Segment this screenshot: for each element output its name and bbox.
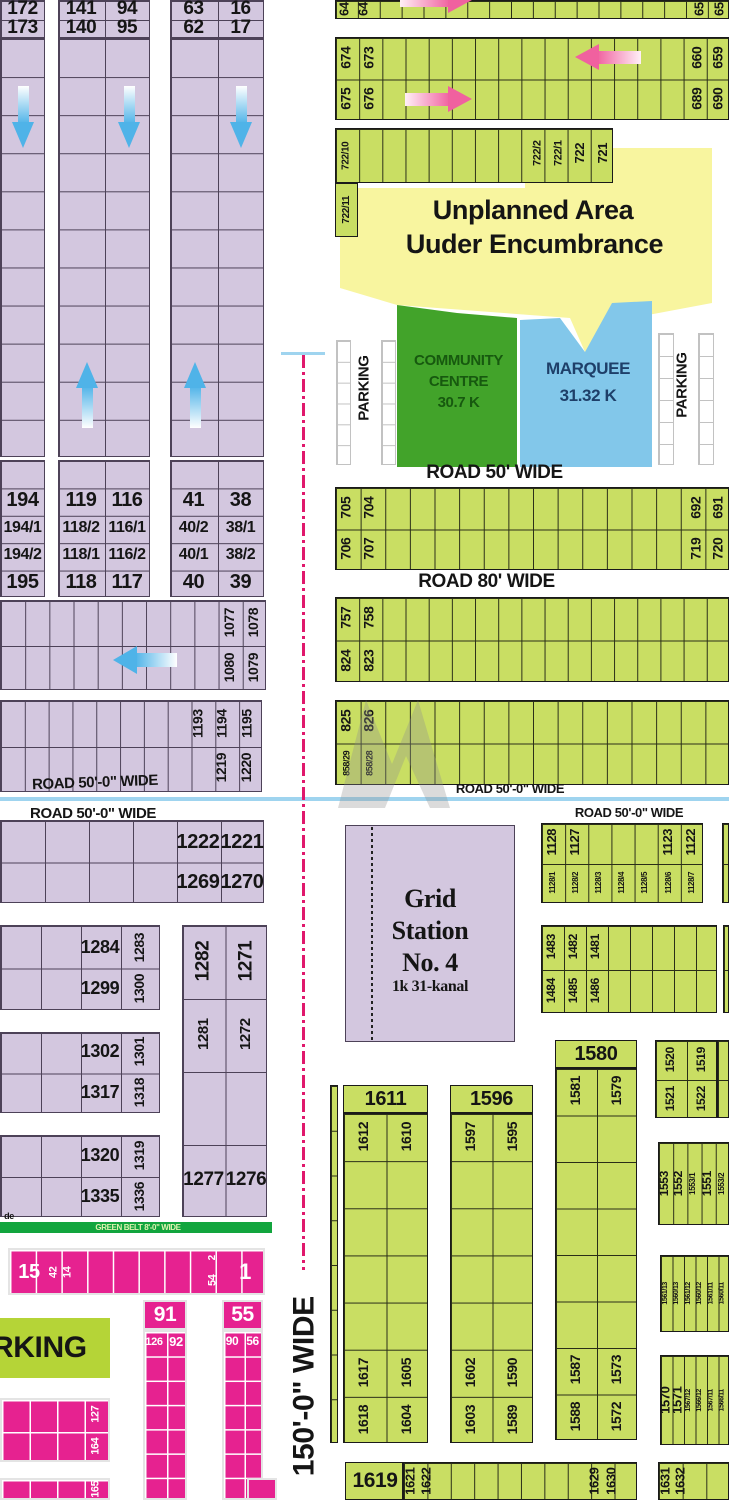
label-text: 1561/12 — [686, 1282, 693, 1305]
plot-label-1318: 1318 — [120, 1072, 160, 1113]
label-text: ROAD 50' WIDE — [426, 464, 563, 482]
label-text: 1128 — [546, 829, 558, 856]
plot-label-692: 692 — [685, 487, 707, 528]
label-text: 30.7 K — [438, 396, 480, 410]
label-text: Unplanned Area — [433, 198, 633, 224]
label-text: 1128/4 — [618, 872, 626, 894]
plot-label-1580: 1580 — [555, 1040, 637, 1068]
plot-grid-stalls-right-2 — [698, 333, 714, 465]
plot-label-1519: 1519 — [686, 1040, 717, 1079]
label-text: 17 — [230, 19, 250, 37]
label-text: 54 — [208, 1274, 218, 1285]
plot-label-parking: PARKING — [670, 335, 696, 435]
plot-label-1k-31-kanal: 1k 31-kanal — [345, 977, 515, 997]
plot-label-719: 719 — [685, 528, 707, 570]
label-text: 1300 — [133, 974, 146, 1004]
plot-label-41: 41 — [170, 487, 217, 514]
plot-label-1222: 1222 — [176, 822, 220, 862]
plot-label-1300: 1300 — [120, 968, 160, 1009]
blue-arrow-up-icon — [76, 362, 99, 428]
label-text: 15 — [18, 1263, 39, 1282]
label-text: 1080 — [223, 653, 236, 683]
label-text: 1631 — [659, 1467, 671, 1494]
label-text: 90 — [226, 1336, 239, 1347]
label-text: 1560/13 — [674, 1282, 681, 1305]
plot-label-194: 194 — [0, 487, 45, 514]
plot-label-road-80-wide: ROAD 80' WIDE — [405, 571, 568, 593]
plot-grid-r0 — [335, 0, 729, 19]
plot-label-1551: 1551 — [701, 1142, 715, 1225]
label-text: 825 — [340, 710, 353, 732]
plot-label-690: 690 — [708, 78, 729, 120]
plot-label-1221: 1221 — [220, 822, 264, 862]
label-text: 1284 — [81, 939, 119, 956]
label-text: 721 — [597, 143, 609, 164]
plot-label-1596: 1596 — [450, 1085, 533, 1113]
label-text: 1567/11 — [709, 1389, 716, 1411]
plot-label-1566-12: 1566/12 — [695, 1355, 706, 1445]
plot-label-1128-7: 1128/7 — [680, 862, 703, 903]
plot-label-126: 126 — [143, 1330, 165, 1354]
label-text: 1560/12 — [697, 1282, 704, 1305]
label-text: 1277 — [183, 1171, 224, 1189]
plot-label-673: 673 — [358, 37, 381, 78]
label-text: 1482 — [568, 934, 579, 959]
plot-label-1579: 1579 — [596, 1068, 637, 1114]
plot-label-1270: 1270 — [220, 862, 264, 902]
label-text: 64 — [357, 2, 369, 16]
plot-label-1482: 1482 — [563, 925, 585, 969]
plot-label-173: 173 — [0, 19, 45, 38]
plot-label-40-1: 40/1 — [170, 541, 217, 568]
plot-label-1282: 1282 — [182, 925, 225, 998]
plot-label-1617: 1617 — [343, 1349, 385, 1396]
plot-grid-r3 — [335, 487, 729, 570]
plot-label-parking: PARKING — [0, 1318, 110, 1378]
pink-arrow-left-icon — [575, 44, 641, 70]
label-text: 1580 — [575, 1045, 618, 1064]
label-text: 39 — [230, 573, 251, 592]
plot-label-1605: 1605 — [385, 1349, 428, 1396]
label-text: 1270 — [221, 873, 264, 892]
label-text: 42 — [48, 1266, 58, 1277]
blue-arrow-down-icon — [118, 86, 141, 148]
plot-label-1195: 1195 — [234, 702, 260, 746]
plot-label-1619: 1619 — [347, 1462, 403, 1500]
label-text: 1590 — [506, 1358, 519, 1388]
plot-label-1618: 1618 — [343, 1396, 385, 1443]
label-text: 1272 — [239, 1019, 253, 1051]
plot-label-1319: 1319 — [120, 1135, 160, 1176]
plot-label-1283: 1283 — [120, 927, 160, 968]
label-text: 1077 — [223, 608, 236, 638]
plot-label-141: 141 — [58, 0, 104, 19]
label-text: 1193 — [191, 710, 204, 739]
plot-label-117: 117 — [104, 568, 150, 597]
plot-label-1552: 1552 — [672, 1142, 686, 1225]
label-text: 1572 — [610, 1402, 623, 1432]
label-text: 1630 — [605, 1467, 617, 1494]
label-text: 1320 — [81, 1147, 119, 1164]
plot-label-1622: 1622 — [419, 1462, 435, 1500]
plot-label-1589: 1589 — [492, 1396, 533, 1443]
plot-label-1127: 1127 — [564, 823, 587, 862]
plot-label-1336: 1336 — [120, 1176, 160, 1217]
plot-label-675: 675 — [335, 78, 358, 120]
label-text: 1222 — [177, 833, 220, 852]
plot-label-1301: 1301 — [120, 1032, 160, 1072]
label-text: 127 — [91, 1405, 101, 1422]
plot-label-90: 90 — [222, 1330, 242, 1354]
label-text: 195 — [6, 573, 38, 592]
plot-label-1522: 1522 — [686, 1079, 717, 1118]
label-text: 705 — [340, 496, 353, 518]
label-text: 1128/3 — [595, 872, 603, 894]
plot-label-1571: 1571 — [672, 1355, 683, 1445]
label-text: 1 — [239, 1262, 251, 1283]
plot-label-1335: 1335 — [80, 1176, 120, 1217]
housing-scheme-master-plan: 1721731419414095631662171941191164138194… — [0, 0, 729, 1500]
label-text: 689 — [691, 88, 704, 110]
label-text: 1079 — [247, 653, 260, 683]
label-text: 676 — [363, 88, 376, 110]
label-text: 41 — [183, 491, 204, 510]
label-text: ROAD 50'-0" WIDE — [456, 783, 564, 795]
label-text: 56 — [246, 1336, 259, 1347]
plot-label-1317: 1317 — [80, 1072, 120, 1113]
plot-label-road-50-0-wide: ROAD 50'-0" WIDE — [565, 806, 693, 821]
plot-label-689: 689 — [687, 78, 708, 120]
plot-label-1077: 1077 — [218, 600, 242, 645]
label-text: Uuder Encumbrance — [406, 232, 663, 258]
plot-grid-r1 — [335, 37, 729, 120]
plot-label-1560-11: 1560/11 — [718, 1255, 729, 1332]
phase-boundary-line — [302, 355, 305, 1270]
plot-label-1486: 1486 — [585, 969, 607, 1013]
plot-label-38: 38 — [217, 487, 264, 514]
label-text: 164 — [91, 1437, 101, 1454]
plot-grid-r4 — [335, 597, 729, 682]
plot-label-1128-3: 1128/3 — [587, 862, 610, 903]
label-text: 126 — [145, 1337, 162, 1347]
plot-label-674: 674 — [335, 37, 358, 78]
plot-grid-col91 — [143, 1330, 187, 1500]
plot-label-1595: 1595 — [492, 1113, 533, 1160]
plot-label-91: 91 — [143, 1302, 187, 1328]
label-text: 1612 — [357, 1122, 370, 1152]
label-text: 1589 — [506, 1405, 519, 1435]
label-text: 1619 — [352, 1471, 397, 1491]
label-text: 194 — [6, 491, 38, 510]
blue-arrow-up-icon — [184, 362, 207, 428]
label-text: CENTRE — [429, 375, 488, 389]
plot-label-uuder-encumbrance: Uuder Encumbrance — [362, 229, 707, 261]
label-text: ROAD 80' WIDE — [418, 573, 555, 591]
label-text: 116/1 — [108, 520, 145, 535]
plot-label-1122: 1122 — [680, 823, 703, 862]
label-text: 1301 — [133, 1037, 146, 1067]
label-text: 1276 — [226, 1171, 267, 1189]
plot-grid-stalls-left-2 — [381, 340, 396, 465]
plot-label-64: 64 — [354, 0, 373, 18]
plot-label-unplanned-area: Unplanned Area — [397, 195, 669, 227]
label-text: 1629 — [588, 1467, 600, 1494]
plot-label-1483: 1483 — [541, 925, 563, 969]
plot-label-1128: 1128 — [541, 823, 564, 862]
label-text: 719 — [689, 538, 702, 560]
plot-label-1621: 1621 — [403, 1462, 419, 1500]
plot-label-118: 118 — [58, 568, 104, 597]
label-text: 823 — [363, 649, 376, 671]
label-text: 1521 — [665, 1086, 676, 1111]
label-text: Station — [392, 919, 469, 944]
plot-label-825: 825 — [335, 700, 358, 742]
label-text: 707 — [363, 538, 376, 560]
plot-label-1553-2: 1553/2 — [715, 1142, 729, 1225]
plot-label-1581: 1581 — [555, 1068, 596, 1114]
label-text: 116 — [111, 491, 142, 510]
plot-label-17: 17 — [217, 19, 264, 38]
label-text: 1484 — [546, 978, 557, 1003]
label-text: 1553/1 — [690, 1172, 698, 1194]
label-text: 1220 — [240, 753, 253, 783]
plot-grid-blk1520-sl — [717, 1040, 729, 1118]
label-text: 118 — [65, 573, 96, 592]
label-text: 673 — [363, 46, 376, 68]
label-text: 1317 — [81, 1084, 119, 1101]
plot-label-1611: 1611 — [343, 1085, 428, 1113]
label-text: 1319 — [133, 1141, 146, 1171]
label-text: 117 — [111, 573, 142, 592]
label-text: 94 — [117, 0, 137, 18]
plot-label-1602: 1602 — [450, 1349, 492, 1396]
label-text: 1122 — [685, 829, 697, 856]
label-text: 1k 31-kanal — [392, 979, 468, 994]
plot-label-1588: 1588 — [555, 1394, 596, 1440]
label-text: 1485 — [568, 978, 579, 1003]
plot-label-grid: Grid — [345, 884, 515, 914]
label-text: ROAD 50'-0" WIDE — [30, 807, 156, 821]
plot-label-38-2: 38/2 — [217, 541, 264, 568]
label-text: 758 — [363, 607, 376, 629]
plot-grid-col55 — [222, 1330, 263, 1500]
label-text: 14 — [62, 1266, 72, 1277]
label-text: 140 — [66, 19, 97, 37]
label-text: 1522 — [696, 1086, 707, 1111]
plot-label-118-2: 118/2 — [58, 514, 104, 541]
label-text: 1123 — [662, 829, 674, 856]
label-text: 118/2 — [62, 520, 99, 535]
label-text: 1481 — [590, 934, 601, 959]
label-text: 2 — [208, 1255, 218, 1260]
plot-label-1271: 1271 — [225, 925, 267, 998]
plot-label-1128-1: 1128/1 — [541, 862, 564, 903]
plot-label-38-1: 38/1 — [217, 514, 264, 541]
plot-label-1521: 1521 — [655, 1079, 686, 1118]
label-text: 1486 — [590, 978, 601, 1003]
label-text: 1611 — [365, 1090, 407, 1109]
label-text: 1519 — [696, 1047, 707, 1072]
plot-label-1553-1: 1553/1 — [686, 1142, 701, 1225]
label-text: 38/2 — [226, 547, 256, 562]
plot-label-65: 65 — [710, 0, 729, 18]
label-text: 706 — [340, 538, 353, 560]
plot-label-1128-4: 1128/4 — [610, 862, 633, 903]
label-text: 62 — [183, 19, 203, 37]
label-text: 1596 — [470, 1090, 513, 1109]
label-text: 691 — [711, 496, 724, 518]
label-text: 63 — [183, 0, 203, 18]
label-text: 1604 — [400, 1405, 413, 1435]
plot-label-150-0-wide: 150'-0" WIDE — [284, 1272, 326, 1500]
plot-label-1604: 1604 — [385, 1396, 428, 1443]
plot-label-1587: 1587 — [555, 1347, 596, 1393]
label-text: 1520 — [665, 1047, 676, 1072]
plot-label-55: 55 — [222, 1302, 263, 1328]
blue-arrow-down-icon — [12, 86, 35, 148]
label-text: 1566/12 — [697, 1389, 704, 1412]
plot-label-140: 140 — [58, 19, 104, 38]
label-text: 1617 — [357, 1358, 370, 1388]
label-text: 1588 — [569, 1402, 582, 1432]
label-text: PARKING — [676, 352, 690, 417]
blue-arrow-left-icon — [113, 646, 177, 674]
label-text: 194/1 — [3, 520, 41, 535]
label-text: 119 — [65, 491, 96, 510]
label-text: 1483 — [546, 934, 557, 959]
plot-label-116: 116 — [104, 487, 150, 514]
plot-label-1219: 1219 — [210, 746, 234, 790]
plot-label-1610: 1610 — [385, 1113, 428, 1160]
label-text: 65 — [713, 2, 725, 16]
label-text: 720 — [711, 538, 724, 560]
plot-label-1561-12: 1561/12 — [683, 1255, 695, 1332]
plot-label-1284: 1284 — [80, 927, 120, 968]
label-text: 38 — [230, 491, 251, 510]
plot-label-660: 660 — [687, 37, 708, 78]
plot-label-42: 42 — [46, 1252, 61, 1292]
label-text: GREEN BELT 8'-0" WIDE — [95, 1224, 180, 1232]
plot-label-705: 705 — [335, 487, 358, 528]
plot-label-704: 704 — [358, 487, 381, 528]
label-text: 65 — [694, 2, 706, 16]
plot-label-1123: 1123 — [657, 823, 680, 862]
label-text: 1551 — [702, 1171, 713, 1196]
label-text: PARKING — [0, 1334, 87, 1363]
plot-label-1: 1 — [228, 1252, 262, 1292]
plot-grid-col-sliver — [330, 1085, 338, 1443]
plot-label-94: 94 — [104, 0, 150, 19]
label-text: 1567/12 — [686, 1389, 693, 1412]
plot-label-road-50-wide: ROAD 50' WIDE — [412, 462, 577, 484]
label-text: 1560/11 — [720, 1282, 727, 1304]
label-text: 1579 — [610, 1076, 623, 1106]
label-text: 1318 — [133, 1078, 146, 1108]
plot-label-164: 164 — [82, 1430, 110, 1462]
label-text: No. 4 — [402, 951, 458, 976]
plot-label-56: 56 — [242, 1330, 263, 1354]
label-text: 1281 — [196, 1019, 210, 1051]
label-text: 1078 — [247, 608, 260, 638]
label-text: 1553 — [659, 1171, 670, 1196]
blue-arrow-down-icon — [230, 86, 253, 148]
plot-label-1078: 1078 — [242, 600, 266, 645]
plot-label-1597: 1597 — [450, 1113, 492, 1160]
label-text: 722/1 — [553, 141, 563, 167]
label-text: 1128/7 — [688, 872, 696, 894]
label-text: 1621 — [405, 1467, 417, 1494]
plot-label-116-1: 116/1 — [104, 514, 150, 541]
plot-label-1630: 1630 — [603, 1462, 620, 1500]
plot-label-1320: 1320 — [80, 1135, 120, 1176]
plot-label-no-4: No. 4 — [345, 948, 515, 978]
label-text: 1335 — [81, 1188, 119, 1205]
plot-grid-stalls-left-1 — [336, 340, 351, 465]
plot-label-1277: 1277 — [182, 1144, 225, 1217]
label-text: 675 — [340, 88, 353, 110]
label-text: 1602 — [464, 1358, 477, 1388]
plot-label-de: de — [0, 1210, 18, 1222]
label-text: 1127 — [569, 829, 581, 856]
label-text: 38/1 — [226, 520, 256, 535]
plot-label-659: 659 — [708, 37, 729, 78]
plot-label-1560-13: 1560/13 — [672, 1255, 683, 1332]
plot-label-691: 691 — [707, 487, 729, 528]
plot-label-community: COMMUNITY — [400, 352, 517, 371]
plot-label-1080: 1080 — [218, 645, 242, 690]
plot-label-720: 720 — [707, 528, 729, 570]
pink-arrow-right-icon — [400, 0, 472, 13]
plot-label-16: 16 — [217, 0, 264, 19]
label-text: 118/1 — [62, 547, 99, 562]
plot-label-green-belt-8-0-wide: GREEN BELT 8'-0" WIDE — [8, 1222, 268, 1233]
label-text: 1566/11 — [720, 1389, 727, 1411]
plot-grid-blk1483-sl — [723, 925, 729, 1013]
plot-label-119: 119 — [58, 487, 104, 514]
label-text: 40/2 — [179, 520, 209, 535]
plot-label-14: 14 — [60, 1252, 75, 1292]
plot-grid-blk1128-sl — [722, 823, 729, 903]
label-text: 1299 — [81, 980, 119, 997]
label-text: 173 — [7, 19, 38, 37]
plot-label-1567-11: 1567/11 — [706, 1355, 718, 1445]
plot-label-1603: 1603 — [450, 1396, 492, 1443]
label-text: COMMUNITY — [414, 354, 503, 368]
label-text: 722/10 — [342, 141, 352, 169]
plot-label-62: 62 — [170, 19, 217, 38]
label-text: 722 — [574, 143, 586, 164]
label-text: 165 — [91, 1480, 101, 1497]
plot-label-824: 824 — [335, 639, 358, 682]
plot-label-2: 2 — [206, 1248, 220, 1268]
plot-label-1566-11: 1566/11 — [718, 1355, 729, 1445]
label-text: 690 — [712, 88, 725, 110]
label-text: 1597 — [464, 1122, 477, 1152]
plot-label-65: 65 — [690, 0, 710, 18]
plot-label-1481: 1481 — [585, 925, 607, 969]
plot-label-1269: 1269 — [176, 862, 220, 902]
plot-label-194-2: 194/2 — [0, 541, 45, 568]
plot-label-64: 64 — [335, 0, 354, 18]
label-text: 660 — [691, 46, 704, 68]
label-text: 1561/11 — [709, 1282, 716, 1304]
pink-arrow-right-icon — [405, 86, 472, 112]
plot-label-15: 15 — [12, 1252, 46, 1292]
plot-label-707: 707 — [358, 528, 381, 570]
label-text: 757 — [340, 607, 353, 629]
label-text: 1221 — [221, 833, 264, 852]
label-text: 659 — [712, 46, 725, 68]
